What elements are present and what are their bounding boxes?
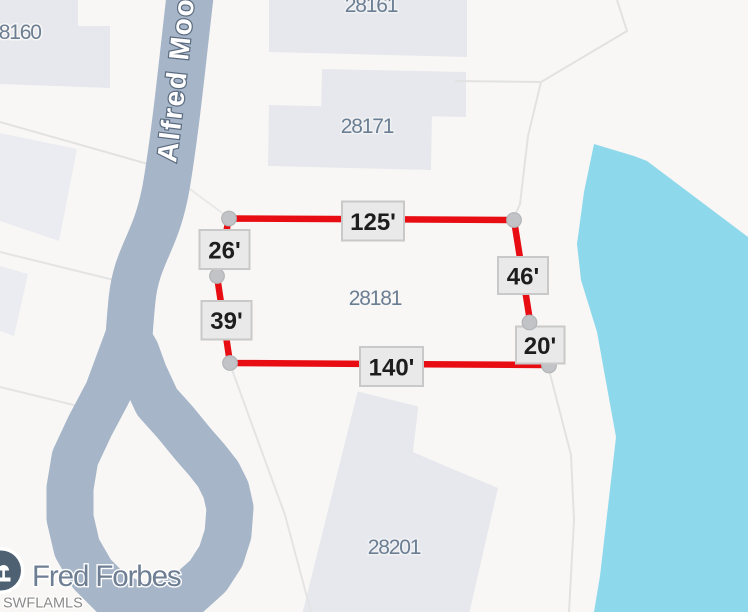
svg-text:140': 140' bbox=[369, 355, 415, 382]
svg-text:Fred Forbes: Fred Forbes bbox=[32, 560, 181, 593]
svg-text:28201: 28201 bbox=[368, 536, 421, 559]
svg-text:28171: 28171 bbox=[341, 115, 394, 138]
svg-text:125': 125' bbox=[350, 209, 396, 236]
svg-text:28161: 28161 bbox=[345, 0, 398, 17]
svg-text:20': 20' bbox=[524, 333, 556, 360]
svg-text:46': 46' bbox=[507, 264, 539, 291]
svg-text:26': 26' bbox=[208, 238, 240, 265]
svg-text:SWFLAMLS: SWFLAMLS bbox=[3, 596, 83, 612]
svg-text:28160: 28160 bbox=[0, 21, 41, 44]
svg-text:39': 39' bbox=[210, 308, 242, 335]
svg-text:28181: 28181 bbox=[349, 287, 402, 310]
